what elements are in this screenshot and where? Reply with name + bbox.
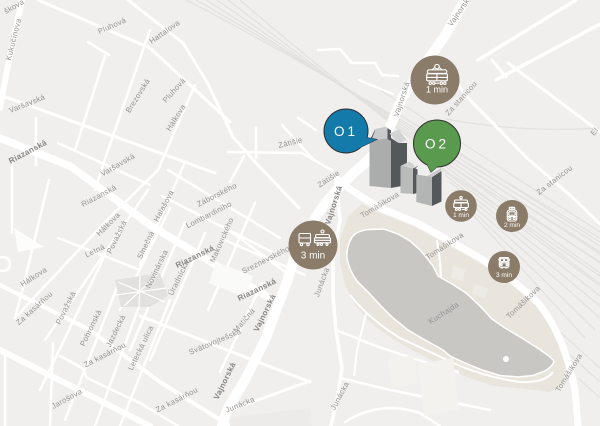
svg-text:1 min: 1 min <box>426 85 448 95</box>
svg-text:2 min: 2 min <box>504 222 520 229</box>
svg-text:3 min: 3 min <box>301 251 325 262</box>
svg-text:O1: O1 <box>334 124 358 139</box>
svg-text:3 min: 3 min <box>496 272 512 279</box>
svg-text:O2: O2 <box>425 137 449 152</box>
svg-text:1 min: 1 min <box>453 212 469 219</box>
